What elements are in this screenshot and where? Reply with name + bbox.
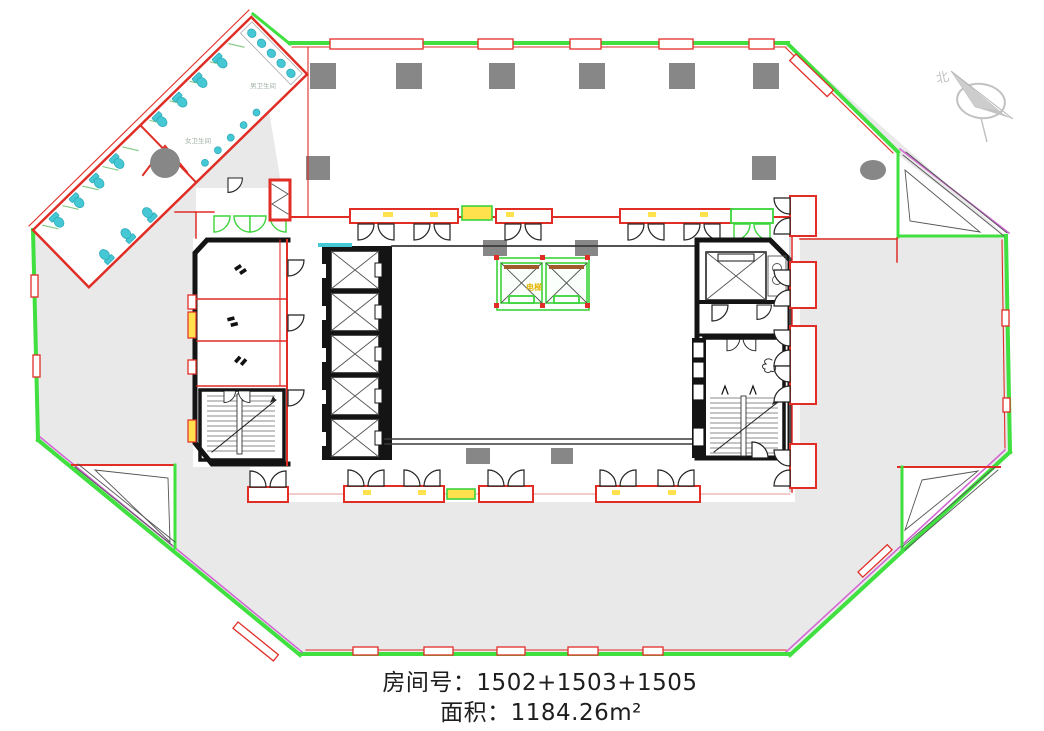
area-label: 面积：: [440, 700, 511, 726]
men-restroom-label: 男卫生间: [250, 81, 276, 90]
north-label: 北: [935, 70, 951, 87]
top-corridor-doors: [290, 206, 790, 240]
women-restroom-label: 女卫生间: [185, 136, 211, 145]
area-value: 1184.26m²: [511, 700, 642, 726]
floor-plan-svg: 男卫生间 女卫生间: [0, 0, 1044, 731]
room-number-text: 房间号：1502+1503+1505: [382, 663, 697, 697]
highlighted-elevators: 电梯: [494, 255, 590, 310]
floor-plan-page: 男卫生间 女卫生间: [0, 0, 1044, 731]
elevator-label: 电梯: [526, 282, 542, 292]
compass: 北: [935, 70, 1013, 142]
elevator-bank: [318, 243, 392, 460]
area-text: 面积：1184.26m²: [440, 693, 642, 727]
round-column: [150, 148, 180, 178]
